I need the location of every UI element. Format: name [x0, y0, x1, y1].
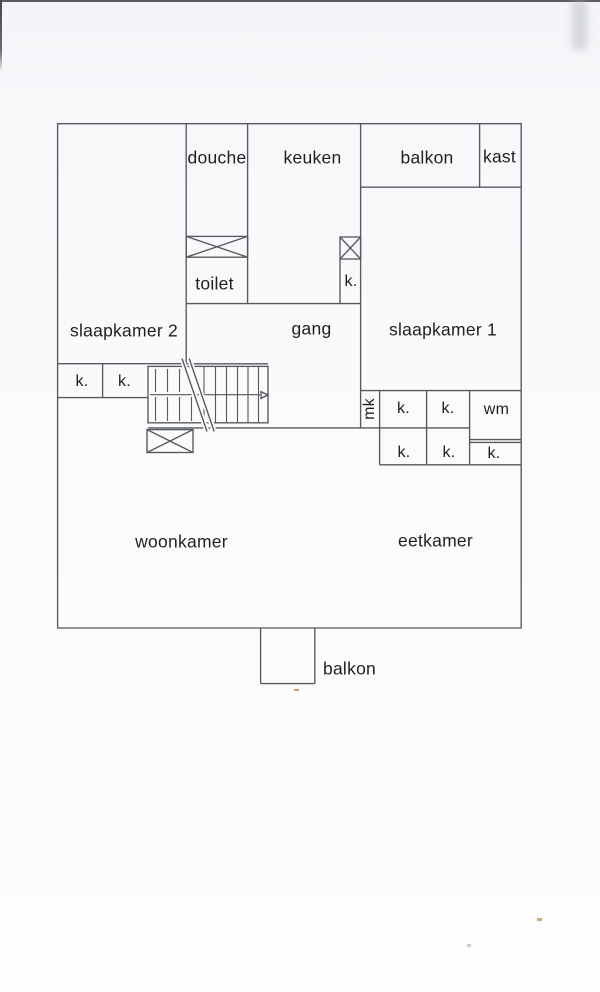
scan-edge-artifact-left	[0, 0, 2, 72]
stairs	[148, 359, 268, 432]
room-label-woonkamer: woonkamer	[135, 532, 228, 553]
closet-label-r2c1: k.	[398, 444, 411, 462]
douche-crossed-box	[186, 236, 247, 257]
room-label-balkon-top: balkon	[400, 147, 453, 168]
room-label-slaapkamer2: slaapkamer 2	[70, 320, 178, 341]
stairs-direction-arrow	[261, 392, 268, 399]
scan-smudge-top-right	[572, 0, 587, 50]
room-label-kast: kast	[483, 147, 516, 168]
closet-label-left-2: k.	[118, 373, 131, 391]
room-label-eetkamer: eetkamer	[398, 530, 473, 551]
room-label-slaapkamer1: slaapkamer 1	[389, 320, 497, 341]
closet-label-r1c1: k.	[397, 400, 410, 418]
scan-speck	[294, 689, 299, 691]
room-label-gang: gang	[292, 319, 332, 340]
room-label-toilet: toilet	[195, 274, 233, 295]
meterkast-label: mk	[361, 398, 379, 420]
balkon-bottom-outline	[261, 628, 315, 684]
room-label-balkon-bottom: balkon	[323, 659, 376, 680]
closet-label-r2c2: k.	[443, 444, 456, 462]
scan-edge-artifact-top	[0, 0, 600, 2]
scan-speck	[467, 944, 471, 947]
closet-label-keuken: k.	[345, 273, 358, 291]
scanned-floorplan-page: douche keuken balkon kast toilet slaapka…	[0, 0, 600, 992]
closet-label-r2c3: k.	[488, 445, 501, 463]
room-label-keuken: keuken	[284, 148, 342, 169]
closet-label-r1c2: k.	[442, 400, 455, 418]
room-label-douche: douche	[188, 148, 247, 169]
chimney-crossed-box	[147, 430, 193, 453]
closet-label-left-1: k.	[76, 373, 89, 391]
keuken-crossed-box	[340, 237, 361, 259]
wasmachine-label: wm	[484, 401, 509, 419]
scan-speck	[537, 918, 542, 921]
